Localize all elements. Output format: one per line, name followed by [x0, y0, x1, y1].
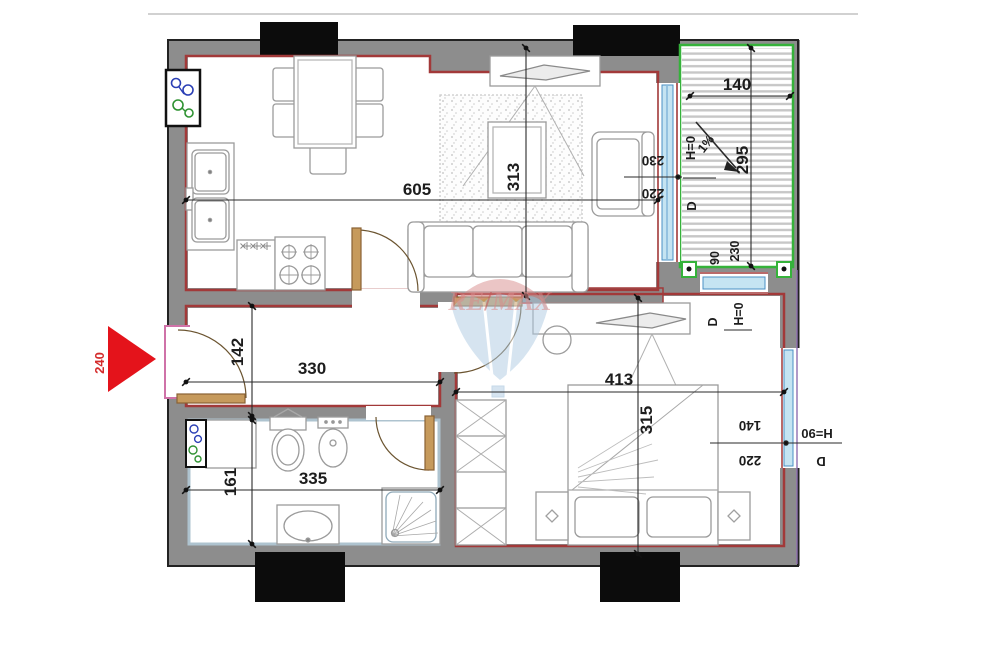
balcony-door-height: 230 [642, 154, 665, 168]
living-furniture [408, 56, 654, 292]
watermark-max: MAX [492, 286, 552, 316]
bedroom-window-height: 140 [739, 419, 762, 433]
dim-label-330: 330 [282, 359, 342, 379]
dim-label-315: 315 [637, 395, 657, 445]
dim-label-142: 142 [228, 327, 248, 377]
shower [382, 488, 440, 544]
toilet [270, 409, 306, 471]
bedroom-window-width: 220 [739, 454, 762, 468]
dining-furniture [273, 56, 383, 174]
bathroom-door [376, 416, 434, 470]
washbasin [277, 505, 339, 544]
entrance-label: 240 [90, 343, 110, 383]
balcony-door-tag: D [682, 194, 702, 218]
dim-label-605: 605 [387, 180, 447, 200]
pillow [647, 497, 711, 537]
transom-door-tag: D [703, 313, 721, 331]
bidet [318, 417, 348, 467]
bedroom-transom-window [700, 272, 768, 294]
watermark-re: RE [448, 286, 484, 316]
entrance-arrow-icon [108, 326, 156, 392]
balcony-door-threshold: H=0 [681, 130, 701, 166]
dim-label-295: 295 [733, 135, 753, 185]
transom-door-threshold: H=0 [729, 299, 749, 329]
balcony-door-width: 220 [642, 187, 665, 201]
utility-meter-icon [166, 70, 200, 126]
stove [275, 237, 325, 290]
dim-label-90: 90 [705, 246, 725, 270]
kitchen-furniture [186, 143, 325, 290]
floor-plan-drawing [0, 0, 1000, 667]
bedroom-window-parapet: H=90 [791, 423, 843, 443]
bedroom-window-tag: D [806, 451, 836, 471]
pillow [575, 497, 639, 537]
balcony-door-size: 220 230 [630, 152, 676, 202]
utility-meter-icon [186, 420, 206, 467]
dim-label-313: 313 [504, 152, 524, 202]
dim-label-413: 413 [589, 370, 649, 390]
dim-label-230: 230 [725, 233, 745, 269]
dim-label-140: 140 [707, 75, 767, 95]
wardrobe [456, 400, 506, 545]
bedroom-window-size: 220 140 [708, 417, 792, 469]
watermark-slash: / [484, 286, 492, 316]
floor-plan: 605 313 140 295 1% D H=0 90 230 220 230 … [0, 0, 1000, 667]
watermark-brand: RE/MAX [440, 286, 560, 317]
dim-label-161: 161 [221, 457, 241, 507]
dim-label-335: 335 [283, 469, 343, 489]
